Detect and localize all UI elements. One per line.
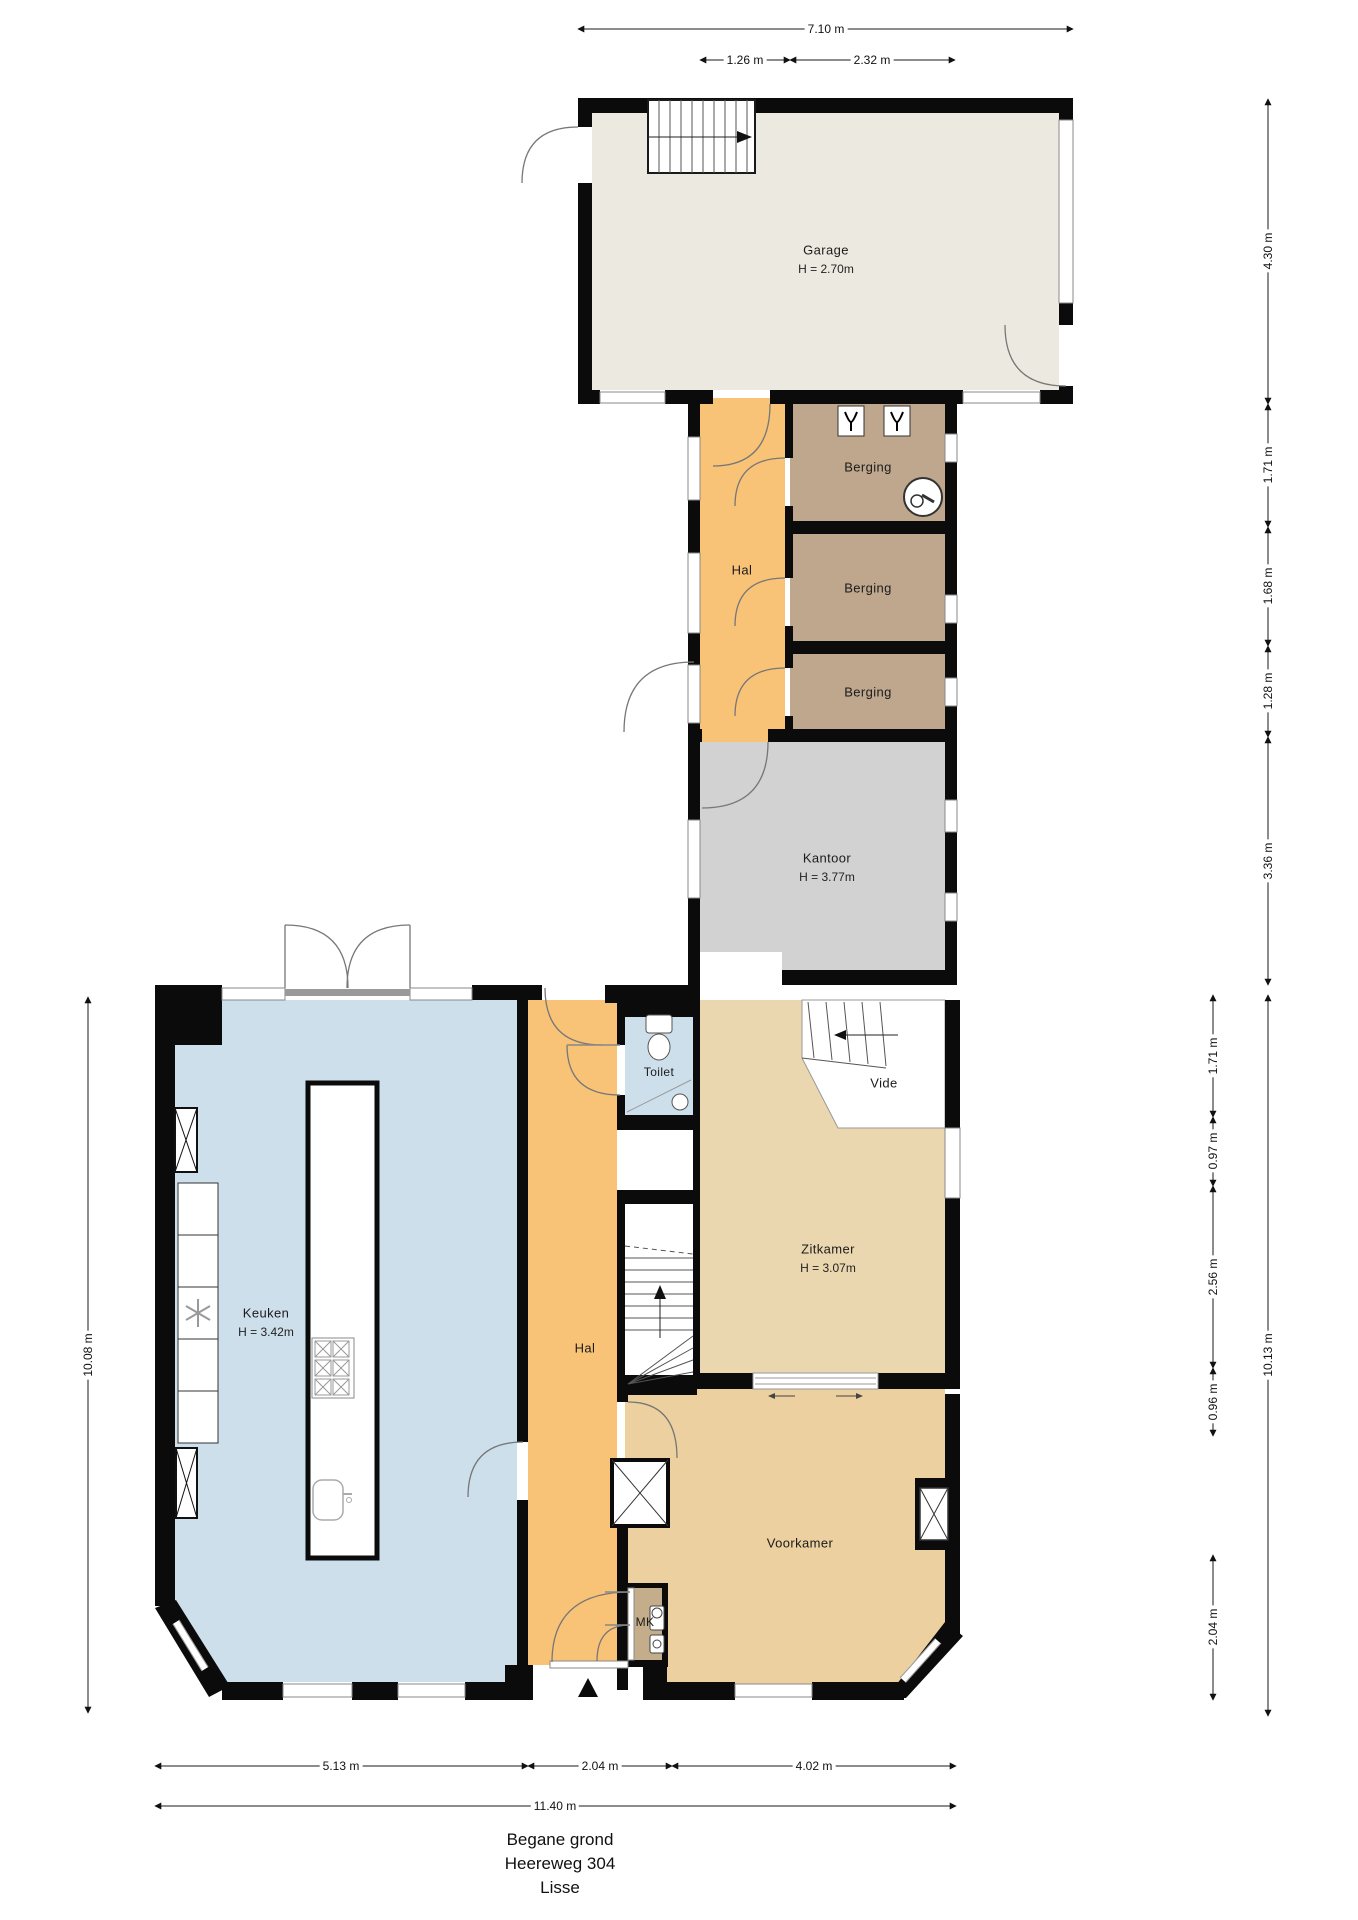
berging2-label: Berging xyxy=(844,581,892,596)
title-street: Heereweg 304 xyxy=(505,1852,616,1876)
kantoor-height-label: H = 3.77m xyxy=(799,870,855,884)
kantoor-passage xyxy=(700,952,782,1002)
keuken-height-label: H = 3.42m xyxy=(238,1325,294,1339)
dim-left-total: 10.08 m xyxy=(81,1330,95,1379)
title-block: Begane grond Heereweg 304 Lisse xyxy=(505,1828,616,1900)
coat-hook-icon xyxy=(838,406,864,436)
dim-top-seg1: 1.26 m xyxy=(724,53,767,67)
berging3-label: Berging xyxy=(844,685,892,700)
keuken-window-south1 xyxy=(283,1684,352,1697)
dim-right-lower1: 1.71 m xyxy=(1206,1035,1220,1078)
garage-window-south2 xyxy=(963,392,1040,403)
dim-bottom-seg2: 2.04 m xyxy=(579,1759,622,1773)
vide-label: Vide xyxy=(870,1076,897,1091)
kantoor-window-east2 xyxy=(945,893,957,921)
hal-window-west3 xyxy=(688,665,700,723)
floorplan-canvas: Garage H = 2.70m Hal Berging Berging Ber… xyxy=(0,0,1358,1920)
garage-label: Garage xyxy=(803,243,849,258)
voorkamer-window-south xyxy=(735,1684,812,1697)
appliance-box-icon xyxy=(176,1448,197,1518)
title-floor: Begane grond xyxy=(505,1828,616,1852)
keuken-window-north2 xyxy=(410,988,472,1000)
zitkamer-label: Zitkamer xyxy=(801,1242,855,1257)
sink-icon xyxy=(672,1094,688,1110)
zitkamer-window-east xyxy=(945,1128,960,1198)
hal-window-west1 xyxy=(688,437,700,500)
mk-door xyxy=(628,1588,634,1660)
dim-right-lower4: 0.96 m xyxy=(1206,1381,1220,1424)
garage-window-east xyxy=(1059,120,1073,303)
boiler-icon xyxy=(904,478,942,516)
dim-right-lower-total: 10.13 m xyxy=(1261,1330,1275,1379)
dim-right-lower2: 0.97 m xyxy=(1206,1130,1220,1173)
dim-right-upper4: 1.28 m xyxy=(1261,670,1275,713)
coat-hook-icon xyxy=(884,406,910,436)
garage-height-label: H = 2.70m xyxy=(798,262,854,276)
dim-top-total: 7.10 m xyxy=(805,22,848,36)
dim-right-upper3: 1.68 m xyxy=(1261,565,1275,608)
dim-bottom-total: 11.40 m xyxy=(531,1799,579,1813)
meter-icon xyxy=(650,1635,664,1653)
hal-window-west2 xyxy=(688,553,700,633)
berging2-window xyxy=(945,595,957,623)
corridor-nook xyxy=(617,1130,700,1190)
appliance-box-icon xyxy=(175,1108,197,1172)
keuken-window-north1 xyxy=(222,988,285,1000)
hal-floor xyxy=(528,1000,617,1665)
garage-stairs xyxy=(648,100,755,173)
floorplan-drawing xyxy=(0,0,1358,1920)
dim-top-seg2: 2.32 m xyxy=(851,53,894,67)
dim-bottom-seg3: 4.02 m xyxy=(793,1759,836,1773)
dim-right-lower5: 2.04 m xyxy=(1206,1606,1220,1649)
mk-label: MK xyxy=(636,1615,655,1629)
berging1-window xyxy=(945,434,957,462)
berging1-label: Berging xyxy=(844,460,892,475)
garage-door-west xyxy=(522,127,578,183)
kantoor-window-east1 xyxy=(945,800,957,832)
dim-right-lower3: 2.56 m xyxy=(1206,1256,1220,1299)
toilet-label: Toilet xyxy=(644,1065,674,1079)
chimney-box-icon xyxy=(920,1488,948,1540)
french-doors-keuken xyxy=(285,925,410,988)
zitkamer-height-label: H = 3.07m xyxy=(800,1261,856,1275)
berging3-window xyxy=(945,678,957,706)
keuken-window-south2 xyxy=(398,1684,465,1697)
dim-right-upper2: 1.71 m xyxy=(1261,444,1275,487)
dim-right-upper5: 3.36 m xyxy=(1261,840,1275,883)
dim-bottom-seg1: 5.13 m xyxy=(320,1759,363,1773)
chimney-box-icon xyxy=(612,1460,668,1526)
hal-exterior-door xyxy=(624,662,694,732)
voorkamer-label: Voorkamer xyxy=(767,1536,833,1551)
kantoor-window-west xyxy=(688,820,700,898)
hal-label: Hal xyxy=(575,1341,596,1356)
french-door-sill xyxy=(285,989,410,996)
garage-window-south1 xyxy=(600,392,665,403)
stove-icon xyxy=(312,1338,354,1398)
entrance-threshold xyxy=(550,1661,628,1668)
kantoor-label: Kantoor xyxy=(803,851,851,866)
title-city: Lisse xyxy=(505,1876,616,1900)
dim-right-upper1: 4.30 m xyxy=(1261,230,1275,273)
keuken-label: Keuken xyxy=(243,1306,290,1321)
hal-boven-label: Hal xyxy=(732,563,753,578)
